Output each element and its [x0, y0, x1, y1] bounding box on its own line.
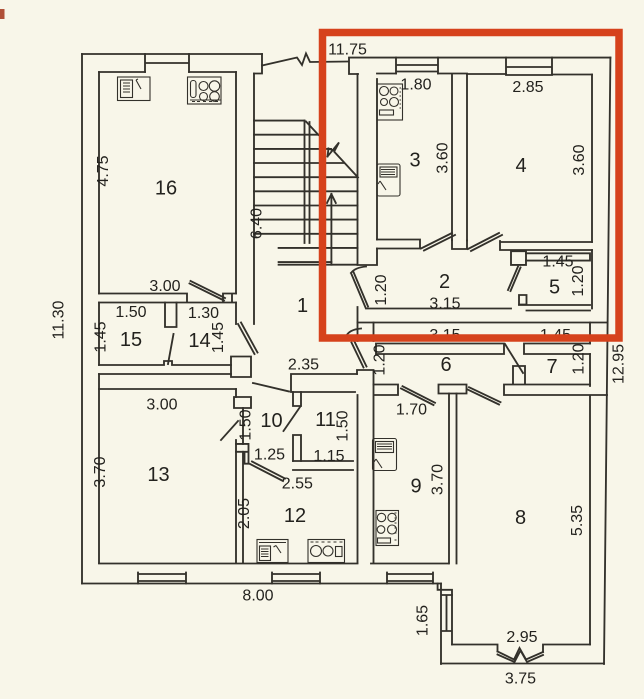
svg-text:1.20: 1.20: [373, 274, 390, 305]
svg-text:5: 5: [549, 277, 560, 299]
svg-text:6: 6: [440, 354, 451, 376]
svg-text:1.45: 1.45: [93, 321, 110, 352]
svg-text:1: 1: [297, 295, 308, 317]
svg-text:1.45: 1.45: [210, 322, 227, 353]
svg-text:11: 11: [315, 409, 336, 431]
svg-text:1.50: 1.50: [115, 304, 146, 321]
svg-text:1.70: 1.70: [396, 402, 427, 419]
svg-text:2: 2: [439, 271, 450, 293]
svg-text:1.50: 1.50: [237, 409, 254, 440]
svg-text:3.70: 3.70: [92, 456, 109, 487]
svg-text:2.05: 2.05: [236, 498, 253, 529]
svg-text:1.50: 1.50: [335, 410, 352, 441]
svg-text:3.00: 3.00: [149, 278, 180, 295]
svg-text:11.75: 11.75: [328, 42, 367, 59]
svg-text:3.60: 3.60: [571, 144, 588, 175]
svg-text:3.70: 3.70: [430, 464, 447, 495]
svg-text:1.30: 1.30: [188, 305, 219, 322]
svg-text:12.95: 12.95: [611, 344, 628, 384]
svg-text:1.20: 1.20: [570, 265, 587, 296]
svg-text:7: 7: [546, 356, 557, 378]
svg-text:2.95: 2.95: [506, 629, 537, 646]
svg-text:2.55: 2.55: [282, 476, 313, 493]
svg-text:1.65: 1.65: [415, 605, 432, 636]
svg-text:1.45: 1.45: [542, 254, 573, 271]
svg-text:3.15: 3.15: [429, 296, 460, 313]
svg-text:2.35: 2.35: [288, 357, 319, 374]
svg-text:14: 14: [188, 330, 210, 352]
svg-text:1.20: 1.20: [571, 343, 588, 374]
svg-text:9: 9: [410, 476, 421, 498]
svg-text:3.60: 3.60: [435, 142, 452, 173]
svg-text:1.15: 1.15: [313, 448, 344, 465]
svg-text:5.35: 5.35: [569, 505, 586, 536]
svg-text:3: 3: [409, 150, 420, 172]
svg-text:1.25: 1.25: [254, 447, 285, 464]
svg-text:10: 10: [260, 410, 282, 432]
svg-text:1.80: 1.80: [400, 77, 431, 94]
svg-text:16: 16: [155, 178, 177, 200]
svg-text:12: 12: [284, 505, 306, 527]
svg-text:13: 13: [147, 464, 169, 486]
svg-text:1.20: 1.20: [372, 344, 389, 375]
svg-text:15: 15: [120, 329, 142, 351]
svg-text:11.30: 11.30: [51, 300, 68, 339]
svg-text:4.75: 4.75: [95, 155, 112, 186]
svg-text:6.40: 6.40: [249, 208, 266, 239]
svg-text:8: 8: [515, 507, 526, 529]
svg-text:2.85: 2.85: [512, 79, 543, 96]
svg-text:4: 4: [515, 155, 526, 177]
svg-text:3.00: 3.00: [146, 397, 177, 414]
svg-text:3.75: 3.75: [505, 671, 536, 688]
svg-text:8.00: 8.00: [242, 588, 273, 605]
